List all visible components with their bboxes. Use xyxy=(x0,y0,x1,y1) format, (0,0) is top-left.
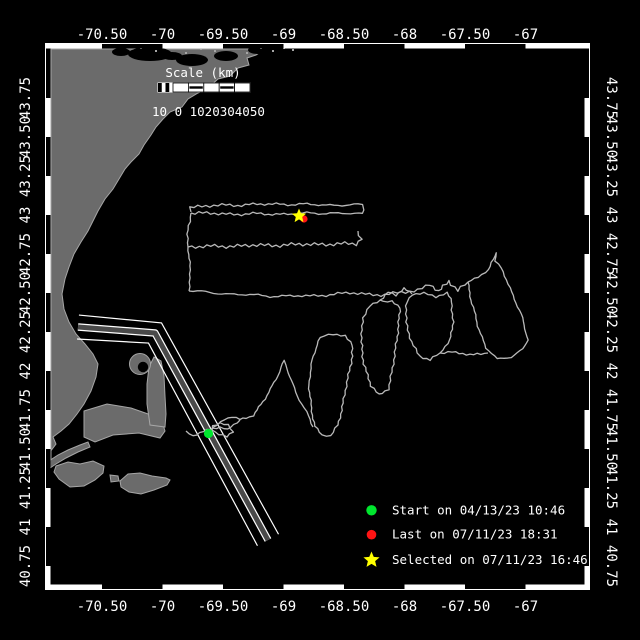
legend: Start on 04/13/23 10:46Last on 07/11/23 … xyxy=(363,502,587,567)
lon-label-bottom: -68.50 xyxy=(319,599,370,615)
border-segment xyxy=(46,371,51,410)
lon-label-top: -67 xyxy=(513,27,538,43)
lat-label-left: 41.50 xyxy=(18,428,34,470)
lon-label-top: -68.50 xyxy=(319,27,370,43)
scalebar-segment xyxy=(173,83,188,92)
border-segment xyxy=(585,215,590,254)
lat-label-left: 43 xyxy=(18,207,34,224)
lat-label-right: 41 xyxy=(603,519,619,536)
scalebar-values: 10 0 1020304050 xyxy=(152,104,265,119)
legend-label: Selected on 07/11/23 16:46 xyxy=(392,552,588,567)
lat-label-right: 43 xyxy=(603,207,619,224)
lat-label-left: 42.50 xyxy=(18,272,34,314)
lon-label-bottom: -70.50 xyxy=(77,599,128,615)
border-segment xyxy=(46,137,51,176)
lon-label-top: -69 xyxy=(271,27,296,43)
cape-cod-hook-bay xyxy=(138,362,148,372)
lon-label-bottom: -70 xyxy=(150,599,175,615)
lon-label-bottom: -67 xyxy=(513,599,538,615)
scalebar-title: Scale (km) xyxy=(165,65,240,80)
lat-label-left: 42.75 xyxy=(18,233,34,275)
lat-label-right: 41.75 xyxy=(603,389,619,431)
legend-label: Start on 04/13/23 10:46 xyxy=(392,502,565,517)
lat-label-left: 41.25 xyxy=(18,467,34,509)
lat-label-left: 40.75 xyxy=(18,545,34,587)
coast-speckle xyxy=(272,50,274,52)
scalebar-stripe xyxy=(220,86,233,88)
border-segment xyxy=(46,293,51,332)
lat-label-left: 41.75 xyxy=(18,389,34,431)
lat-label-right: 41.25 xyxy=(603,467,619,509)
border-segment xyxy=(344,44,405,49)
border-segment xyxy=(465,585,526,590)
scalebar-segment xyxy=(235,83,250,92)
border-segment xyxy=(585,293,590,332)
border-segment xyxy=(585,137,590,176)
lat-label-left: 42 xyxy=(18,363,34,380)
lon-label-bottom: -67.50 xyxy=(440,599,491,615)
lat-label-left: 43.25 xyxy=(18,155,34,197)
lat-label-right: 43.50 xyxy=(603,116,619,158)
start-marker[interactable] xyxy=(204,429,213,438)
coast-speckle xyxy=(214,50,216,52)
border-segment xyxy=(102,585,163,590)
bay xyxy=(214,51,238,61)
border-segment xyxy=(585,49,590,99)
bay xyxy=(162,52,182,60)
lat-label-left: 42.25 xyxy=(18,311,34,353)
border-segment xyxy=(585,371,590,410)
lat-label-right: 41.50 xyxy=(603,428,619,470)
border-segment xyxy=(46,527,51,566)
scalebar-segment xyxy=(204,83,219,92)
lon-label-top: -67.50 xyxy=(440,27,491,43)
lat-label-right: 43.25 xyxy=(603,155,619,197)
legend-start-dot xyxy=(366,505,376,515)
border-segment xyxy=(585,449,590,488)
legend-last-dot xyxy=(367,530,377,540)
lat-label-right: 42.75 xyxy=(603,233,619,275)
lat-label-right: 42.25 xyxy=(603,311,619,353)
lon-label-bottom: -68 xyxy=(392,599,417,615)
border-segment xyxy=(223,44,284,49)
border-segment xyxy=(46,449,51,488)
lon-label-bottom: -69.50 xyxy=(198,599,249,615)
map-canvas[interactable]: -70.50-70.50-70-70-69.50-69.50-69-69-68.… xyxy=(0,0,640,640)
island xyxy=(110,475,119,482)
lat-label-left: 43.75 xyxy=(18,77,34,119)
border-segment xyxy=(465,44,526,49)
border-segment xyxy=(46,49,51,99)
border-segment xyxy=(223,585,284,590)
lon-label-top: -69.50 xyxy=(198,27,249,43)
lon-label-top: -68 xyxy=(392,27,417,43)
lat-label-left: 41 xyxy=(18,519,34,536)
lat-label-right: 43.75 xyxy=(603,77,619,119)
lon-label-top: -70 xyxy=(150,27,175,43)
border-segment xyxy=(344,585,405,590)
lat-label-right: 40.75 xyxy=(603,545,619,587)
border-segment xyxy=(102,44,163,49)
lon-label-bottom: -69 xyxy=(271,599,296,615)
lon-label-top: -70.50 xyxy=(77,27,128,43)
lat-label-left: 43.50 xyxy=(18,116,34,158)
lat-label-right: 42.50 xyxy=(603,272,619,314)
legend-label: Last on 07/11/23 18:31 xyxy=(392,527,558,542)
scalebar-cell xyxy=(166,83,170,92)
border-segment xyxy=(46,215,51,254)
scalebar-cell xyxy=(158,83,162,92)
scalebar-stripe xyxy=(189,86,202,88)
coast-speckle xyxy=(185,52,187,54)
coast-speckle xyxy=(155,50,157,52)
bay xyxy=(112,48,130,56)
lat-label-right: 42 xyxy=(603,363,619,380)
coast-speckle xyxy=(292,49,294,51)
coast-speckle xyxy=(246,52,248,54)
